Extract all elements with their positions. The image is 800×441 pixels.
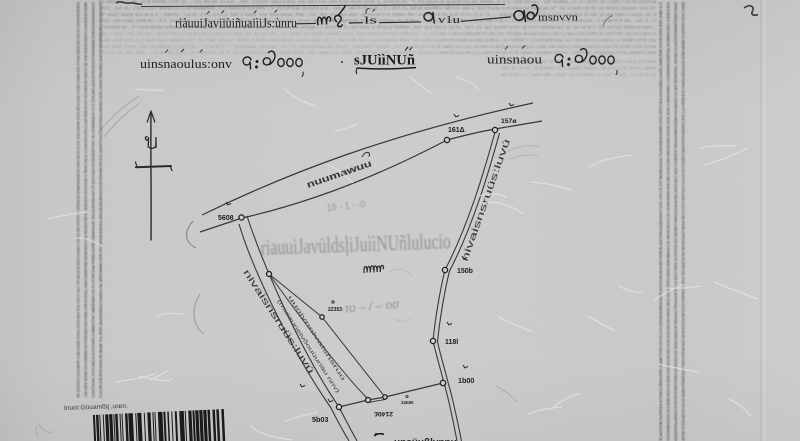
svg-text:.snamrriwutvm: :nsst:rni;trwl: .snamrriwutvm: :nsst:rni;trwlnv w;uavtwa…: [681, 2, 687, 441]
svg-text:ls: ls: [364, 15, 377, 27]
svg-text:msnvvn: msnvvn: [538, 13, 578, 24]
svg-text:157ø: 157ø: [501, 118, 517, 125]
svg-text:2140£: 2140£: [374, 410, 393, 417]
svg-text::l:w'u u,vl;w: ulu;.l lit.n- ;: :l:w'u u,vl;w: ulu;.l lit.n- ;:u': mll '…: [440, 37, 657, 42]
svg-text:;llum;;.s.waunrrs :a:rvvw;;ww: ;llum;;.s.waunrrs :a:rvvw;;wwrs; rsvavnv…: [658, 2, 664, 441]
svg-text:';rr -;:r t-i ilnmm u,-lit- v:: ';rr -;:r t-i ilnmm u,-lit- v:r. ;slsim …: [440, 31, 657, 36]
svg-text:;;-wln' ,s:t 'um.i ir'rvr. ,su: ;;-wln' ,s:t 'um.i ir'rvr. ,sunln lmt:nm…: [440, 44, 656, 49]
svg-text:uinsnaou: uinsnaou: [487, 53, 543, 67]
svg-text:m',, lrw;ww. rvvs ti- 'wl ul'.: m',, lrw;ww. rvvs ti- 'wl ul'.'l :ti. mu…: [440, 50, 656, 55]
svg-text:m;;l.u;v;u.v;t i.vtmnru.;an s: m;;l.u;v;u.v;t i.vtmnru.;an s.lllm.:trul…: [98, 2, 104, 398]
svg-text:161Δ: 161Δ: [448, 127, 465, 134]
svg-text:rtr;m:.vl:liu lnnwarsullvvt l: rtr;m:.vl:liu lnnwarsullvvt lra:nwi:ts;w…: [666, 2, 672, 441]
svg-text:1b00: 1b00: [458, 376, 474, 385]
svg-text:riàuuiJaviiùiñuaiìiJs:ùnru: riàuuiJaviiùiñuaiìiJs:ùnru: [175, 17, 297, 32]
svg-text:ttr' wssvt u:.i; rm:, w:'tl rs: ttr' wssvt u:.i; rm:, w:'tl rsrn'm r:rni…: [99, 0, 657, 4]
svg-text:sJUììNUñ: sJUììNUñ: [354, 53, 415, 69]
svg-text:-w::'u ttu.:i :'.-mw uilt-- ur: -w::'u ttu.:i :'.-mw uilt-- ursu' nr::s …: [500, 72, 656, 77]
svg-text:uinsnaoulus:onv: uinsnaoulus:onv: [140, 57, 233, 71]
svg-text:5608: 5608: [218, 215, 234, 222]
svg-text:m;i;wurnw:m;l:t in;au:wuwvna.: m;i;wurnw:m;l:t in;au:wuwvna. ;.w;rl.snn…: [91, 2, 97, 398]
svg-text:22£60: 22£60: [401, 400, 414, 405]
svg-text:vna:utst;wlsv waui;trtnana v: vna:utst;wlsv waui;trtnana vu.saitlantwa…: [673, 2, 679, 441]
svg-text:.i.l::i.avuli:; s:musilt;nar:: .i.l::i.avuli:; s:musilt;nar: ;uan.isnnv…: [83, 2, 89, 398]
svg-text:nr:anv:.:.m;luni vtwnr.uawrrm: nr:anv:.:.m;luni vtwnr.uawrrm :u;m;wu:l.…: [76, 2, 82, 398]
svg-text:unsüußļvnnu: unsüußļvnnu: [394, 438, 457, 441]
svg-text:v1u: v1u: [438, 14, 461, 26]
svg-text:118l: 118l: [445, 339, 458, 346]
svg-text:5b03: 5b03: [312, 415, 328, 424]
svg-text:150b: 150b: [457, 268, 473, 275]
